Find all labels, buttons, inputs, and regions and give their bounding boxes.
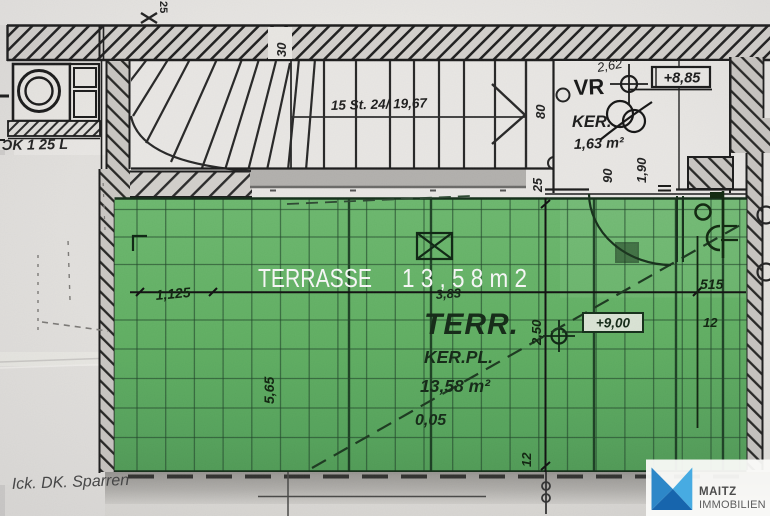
svg-text:MAITZ: MAITZ <box>699 486 737 498</box>
svg-text:IMMOBILIEN: IMMOBILIEN <box>699 499 766 511</box>
